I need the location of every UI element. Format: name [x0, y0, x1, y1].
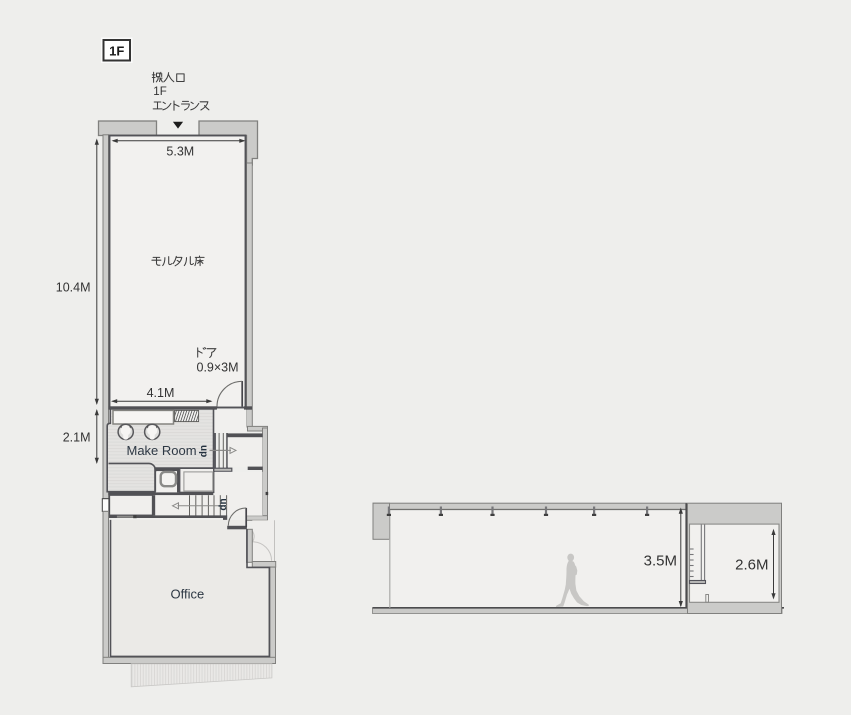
svg-text:Office: Office	[171, 586, 205, 601]
svg-text:0.9×3M: 0.9×3M	[197, 360, 239, 374]
svg-text:10.4M: 10.4M	[56, 281, 91, 295]
svg-text:5.3M: 5.3M	[166, 144, 194, 158]
svg-text:2.6M: 2.6M	[735, 557, 768, 574]
svg-text:1F: 1F	[153, 86, 166, 98]
svg-text:4.1M: 4.1M	[147, 386, 175, 400]
svg-text:Make Room: Make Room	[127, 443, 197, 458]
svg-text:3.5M: 3.5M	[644, 553, 677, 570]
svg-text:up: up	[218, 498, 229, 510]
svg-text:2.1M: 2.1M	[63, 431, 91, 445]
svg-text:1F: 1F	[109, 43, 124, 58]
svg-text:up: up	[198, 445, 209, 457]
